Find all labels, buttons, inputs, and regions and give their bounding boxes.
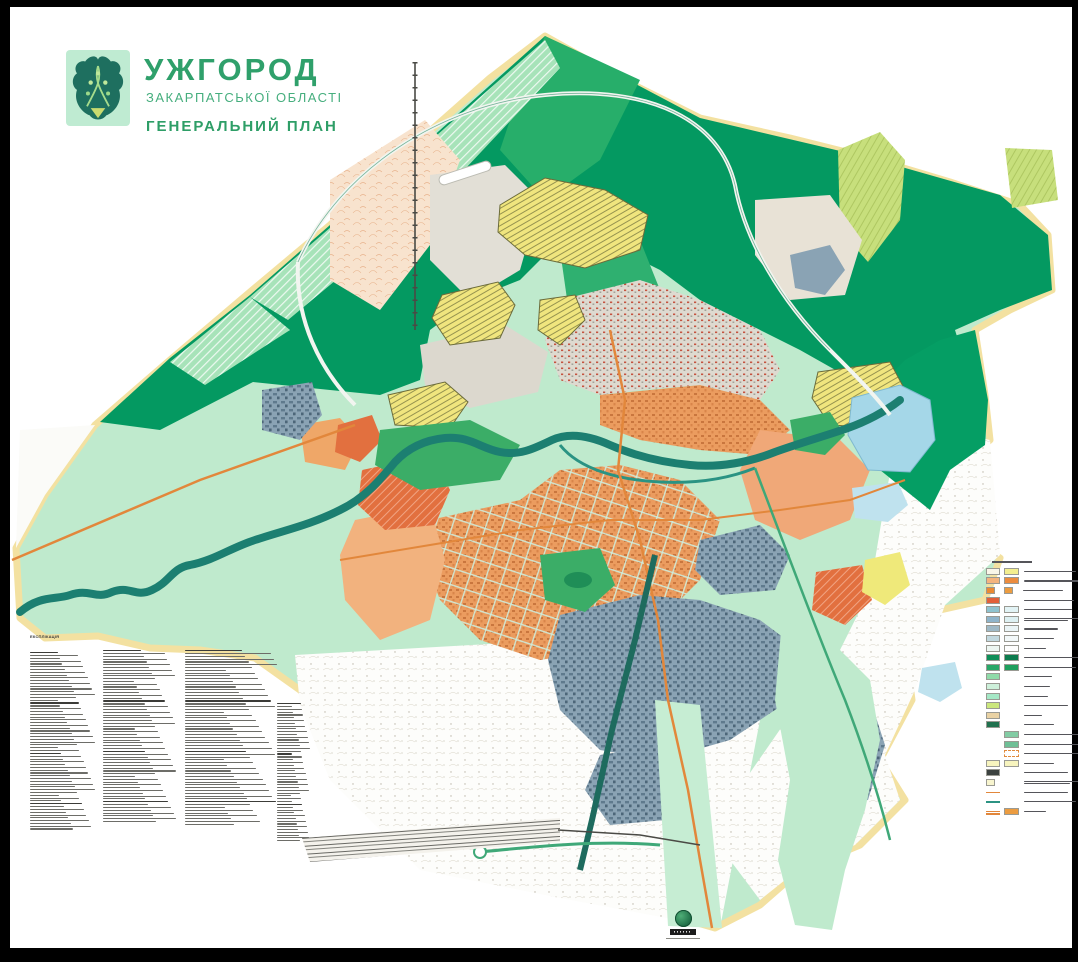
legend-row [986,605,1078,615]
legend-row [986,634,1078,644]
publisher-logo [662,910,704,939]
map-legend [986,561,1078,816]
legend-row [986,576,1078,586]
legend-title-microtext [992,561,1032,563]
legend-row [986,778,1078,788]
legend-row [986,643,1078,653]
legend-row [986,682,1078,692]
legend-row [986,768,1078,778]
city-name: УЖГОРОД [144,52,320,88]
legend-row [986,624,1078,634]
legend-row [986,806,1078,816]
legend-row [986,615,1078,625]
publisher-caption-microtext [666,938,700,939]
legend-row [986,653,1078,663]
legend-row [986,797,1078,807]
legend-row [986,663,1078,673]
legend-row [986,730,1078,740]
publisher-banner [670,929,696,935]
explication-header: ЕКСПЛІКАЦІЯ [30,634,59,639]
legend-row [986,691,1078,701]
region-name: ЗАКАРПАТСЬКОЇ ОБЛАСТІ [146,90,343,105]
legend-row [986,787,1078,797]
explication-column [30,652,96,831]
explication-column [277,703,310,843]
plan-title: ГЕНЕРАЛЬНИЙ ПЛАН [146,118,338,135]
legend-row [986,595,1078,605]
legend-row [986,739,1078,749]
legend-row [986,567,1078,577]
legend-row [986,701,1078,711]
legend-row [986,720,1078,730]
globe-icon [675,910,692,927]
legend-row [986,672,1078,682]
legend-row [986,749,1078,759]
legend-row [986,758,1078,768]
legend-row [986,586,1078,596]
explication-column [103,650,177,824]
legend-row [986,711,1078,721]
explication-column [185,650,277,826]
city-emblem [66,50,130,126]
